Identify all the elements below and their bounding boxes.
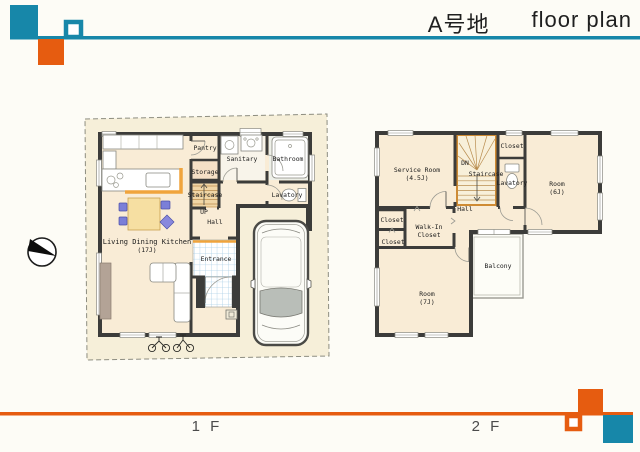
- porch-step: [226, 310, 237, 319]
- car: [251, 221, 311, 345]
- footer-orange-outline-square: [567, 416, 580, 429]
- room-label-closet-low: Closet: [381, 238, 404, 246]
- room-label-room7: Room: [419, 290, 435, 298]
- room-label-bathroom: Bathroom: [273, 155, 304, 163]
- room-label-pantry: Pantry: [193, 144, 216, 152]
- room-label-balcony: Balcony: [485, 262, 512, 270]
- header-teal-outline-square: [66, 22, 81, 37]
- header-teal-square: [10, 5, 38, 37]
- room-label-service: Service Room: [394, 166, 440, 174]
- washing-machine: [221, 136, 238, 154]
- label-dn: DN: [461, 159, 469, 167]
- footer-orange-line: [0, 412, 633, 416]
- room-label-storage: Storage: [192, 168, 219, 176]
- room-label-room6-size: (6J): [549, 188, 564, 196]
- compass-icon: [24, 234, 60, 270]
- room-label-staircase-1f: Staircase: [188, 191, 223, 199]
- room-label-closet-mid: Closet: [380, 216, 403, 224]
- room-label-room7-size: (7J): [419, 298, 434, 306]
- room-label-walkin-2: Closet: [417, 231, 440, 239]
- wash-basin: [241, 135, 262, 151]
- footer-orange-square: [578, 389, 603, 413]
- room-label-entrance: Entrance: [201, 255, 232, 263]
- tv-board: [100, 263, 111, 319]
- page-title-lot: A号地: [428, 7, 490, 39]
- room-label-sanitary: Sanitary: [227, 155, 258, 163]
- label-up: UP: [200, 208, 208, 216]
- room-label-staircase-2f: Staircase: [469, 170, 504, 178]
- room-label-closet-top: Closet: [500, 142, 523, 150]
- porch-tiles: [205, 277, 232, 307]
- room-label-lavatory-2f: Lavatory: [497, 179, 528, 187]
- room-label-lavatory-1f: Lavatory: [272, 191, 303, 199]
- room-label-walkin-1: Walk-In: [416, 223, 443, 231]
- footer-decoration: [0, 385, 640, 452]
- floor-plan-2f: Service Room (4.5J) DN Staircase Closet …: [370, 128, 605, 343]
- room-label-hall-2f: Hall: [457, 205, 473, 213]
- footer-teal-square: [603, 415, 633, 443]
- room-label-ldk: Living Dining Kitchen: [103, 238, 192, 246]
- page-title: A号地 floor plan: [428, 7, 632, 39]
- floor-label-2f: 2 F: [452, 418, 522, 435]
- room-label-room6: Room: [549, 180, 565, 188]
- room-label-service-size: (4.5J): [405, 174, 428, 182]
- floor-plan-1f: Pantry Sanitary Bathroom Storage Stairca…: [80, 105, 350, 375]
- room-label-hall-1f: Hall: [207, 218, 223, 226]
- page-title-text: floor plan: [531, 7, 632, 39]
- room-label-ldk-size: (17J): [137, 246, 156, 254]
- floor-plan-page: A号地 floor plan: [0, 0, 640, 452]
- floor-label-1f: 1 F: [172, 418, 242, 435]
- header-orange-square: [38, 39, 64, 65]
